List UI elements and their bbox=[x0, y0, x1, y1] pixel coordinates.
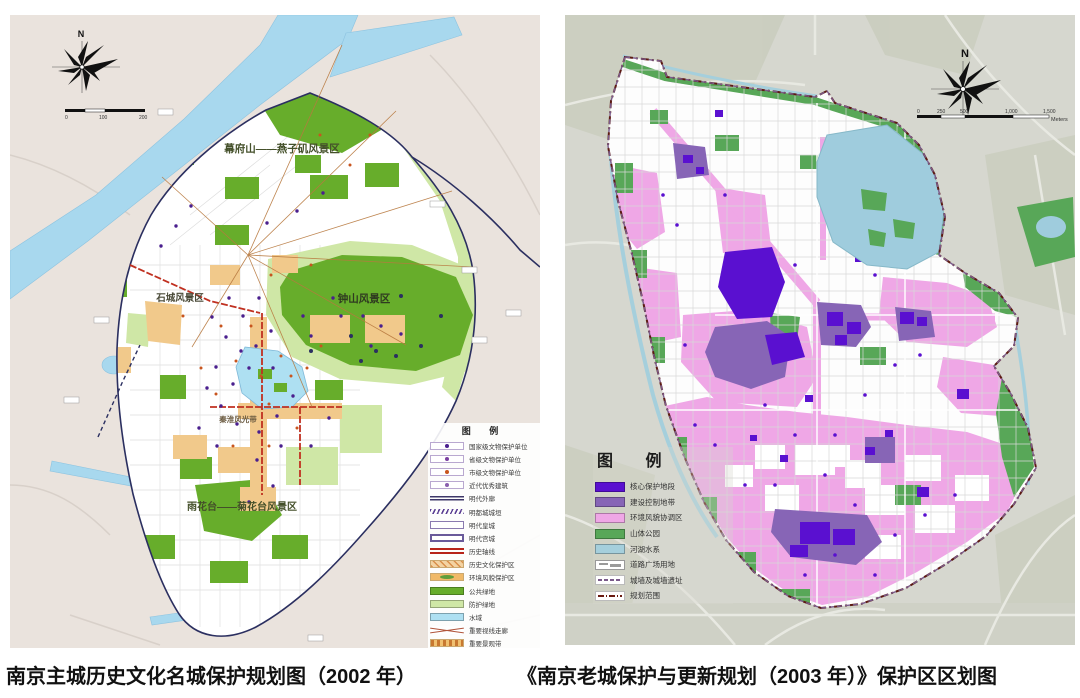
legend-label: 明代皇城 bbox=[469, 520, 495, 530]
label-yuhuatai: 雨花台——菊花台风景区 bbox=[187, 500, 297, 513]
legend-label: 明代宫城 bbox=[469, 533, 495, 543]
legend-item: 近代优秀建筑 bbox=[430, 479, 538, 492]
legend-swatch-fill bbox=[595, 529, 625, 539]
legend-item: 重要景观带 bbox=[430, 637, 538, 650]
left-legend-title: 图 例 bbox=[430, 424, 538, 437]
left-map-caption: 南京主城历史文化名城保护规划图（2002 年） bbox=[6, 660, 416, 689]
legend-item: 河湖水系 bbox=[595, 541, 731, 557]
background-strip bbox=[565, 603, 1075, 645]
legend-item: 核心保护地段 bbox=[595, 479, 731, 495]
right-legend: 图 例 核心保护地段建设控制地带环境风貌协调区山体公园河湖水系道路广场用地城墙及… bbox=[593, 447, 733, 604]
legend-label: 近代优秀建筑 bbox=[469, 480, 508, 490]
right-legend-title: 图 例 bbox=[597, 447, 731, 471]
legend-swatch-wall bbox=[595, 575, 625, 585]
legend-swatch-fill bbox=[595, 497, 625, 507]
legend-item: 省级文物保护单位 bbox=[430, 452, 538, 465]
figure-canvas: N 0 100 200 幕府山——燕子矶风景区 钟山风景区 石城风景区 雨花台—… bbox=[0, 0, 1080, 698]
compass-north-label: N bbox=[961, 48, 969, 60]
scale-tick: 100 bbox=[99, 115, 108, 121]
legend-item: 市级文物保护单位 bbox=[430, 465, 538, 478]
legend-item: 环境风貌保护区 bbox=[430, 571, 538, 584]
legend-swatch-fill bbox=[595, 482, 625, 492]
legend-label: 河湖水系 bbox=[630, 544, 660, 555]
legend-label: 明都城城垣 bbox=[469, 507, 502, 517]
legend-swatch-fill bbox=[595, 513, 625, 523]
left-legend-rows: 国家级文物保护单位省级文物保护单位市级文物保护单位近代优秀建筑明代外廓明都城城垣… bbox=[430, 439, 538, 650]
legend-swatch-dot bbox=[430, 442, 464, 450]
legend-swatch-outline bbox=[430, 521, 464, 529]
legend-item: 国家级文物保护单位 bbox=[430, 439, 538, 452]
legend-swatch-fill bbox=[595, 544, 625, 554]
legend-item: 环境风貌协调区 bbox=[595, 510, 731, 526]
legend-label: 防护绿地 bbox=[469, 599, 495, 609]
legend-label: 明代外廓 bbox=[469, 493, 495, 503]
legend-label: 重要视线走廊 bbox=[469, 625, 508, 635]
legend-item: 明代外廓 bbox=[430, 492, 538, 505]
scale-unit: Meters bbox=[1051, 117, 1068, 123]
legend-item: 历史轴线 bbox=[430, 545, 538, 558]
legend-swatch-fill bbox=[430, 600, 464, 608]
label-mufushan: 幕府山——燕子矶风景区 bbox=[223, 142, 340, 155]
legend-swatch-outline2 bbox=[430, 534, 464, 542]
legend-label: 重要景观带 bbox=[469, 638, 502, 648]
legend-swatch-cross bbox=[430, 626, 464, 634]
legend-label: 历史轴线 bbox=[469, 546, 495, 556]
left-map-panel: N 0 100 200 幕府山——燕子矶风景区 钟山风景区 石城风景区 雨花台—… bbox=[10, 15, 540, 648]
legend-label: 环境风貌保护区 bbox=[469, 572, 515, 582]
right-map-caption: 《南京老城保护与更新规划（2003 年）》保护区区划图 bbox=[517, 660, 997, 689]
right-map-panel: N 0 250 500 1,000 1,500 Meters 图 例 核心保护地… bbox=[565, 15, 1075, 645]
scale-tick: 250 bbox=[937, 109, 946, 115]
legend-swatch-wavy bbox=[430, 508, 464, 516]
right-legend-rows: 核心保护地段建设控制地带环境风貌协调区山体公园河湖水系道路广场用地城墙及城墙遗址… bbox=[595, 479, 731, 604]
legend-item: 防护绿地 bbox=[430, 597, 538, 610]
legend-label: 水域 bbox=[469, 612, 482, 622]
legend-label: 公共绿地 bbox=[469, 586, 495, 596]
legend-swatch-dot bbox=[430, 481, 464, 489]
legend-label: 环境风貌协调区 bbox=[630, 512, 683, 523]
legend-item: 水域 bbox=[430, 610, 538, 623]
legend-label: 历史文化保护区 bbox=[469, 559, 515, 569]
legend-swatch-fill bbox=[430, 613, 464, 621]
legend-swatch-road bbox=[595, 560, 625, 570]
legend-item: 明都城城垣 bbox=[430, 505, 538, 518]
label-zhongshan: 钟山风景区 bbox=[338, 292, 391, 305]
legend-swatch-dot bbox=[430, 468, 464, 476]
legend-label: 规划范围 bbox=[630, 590, 660, 601]
scale-tick: 0 bbox=[917, 109, 920, 115]
legend-swatch-blob bbox=[430, 573, 464, 581]
legend-label: 市级文物保护单位 bbox=[469, 467, 521, 477]
legend-swatch-dashband bbox=[430, 639, 464, 647]
legend-label: 建设控制地带 bbox=[630, 497, 675, 508]
legend-swatch-dot bbox=[430, 455, 464, 463]
legend-swatch-dblline bbox=[430, 547, 464, 555]
label-shicheng: 石城风景区 bbox=[155, 292, 204, 304]
legend-item: 规划范围 bbox=[595, 588, 731, 604]
legend-label: 道路广场用地 bbox=[630, 559, 675, 570]
legend-item: 公共绿地 bbox=[430, 584, 538, 597]
left-legend: 图 例 国家级文物保护单位省级文物保护单位市级文物保护单位近代优秀建筑明代外廓明… bbox=[428, 423, 540, 651]
legend-item: 重要视线走廊 bbox=[430, 624, 538, 637]
legend-item: 历史文化保护区 bbox=[430, 558, 538, 571]
legend-label: 省级文物保护单位 bbox=[469, 454, 521, 464]
legend-item: 山体公园 bbox=[595, 526, 731, 542]
label-qinhuai: 秦淮风光带 bbox=[218, 414, 257, 424]
compass-north-label: N bbox=[78, 29, 85, 39]
legend-item: 建设控制地带 bbox=[595, 495, 731, 511]
legend-item: 明代宫城 bbox=[430, 531, 538, 544]
legend-item: 道路广场用地 bbox=[595, 557, 731, 573]
legend-label: 城墙及城墙遗址 bbox=[630, 575, 683, 586]
legend-item: 城墙及城墙遗址 bbox=[595, 573, 731, 589]
legend-label: 国家级文物保护单位 bbox=[469, 441, 528, 451]
legend-label: 山体公园 bbox=[630, 528, 660, 539]
legend-swatch-boundary bbox=[595, 591, 625, 601]
scale-tick: 1,500 bbox=[1043, 109, 1056, 115]
scale-tick: 0 bbox=[65, 115, 68, 121]
scale-tick: 200 bbox=[139, 115, 148, 121]
scale-tick: 500 bbox=[960, 109, 969, 115]
legend-swatch-fill bbox=[430, 587, 464, 595]
legend-swatch-line bbox=[430, 494, 464, 502]
scale-tick: 1,000 bbox=[1005, 109, 1018, 115]
legend-item: 明代皇城 bbox=[430, 518, 538, 531]
legend-label: 核心保护地段 bbox=[630, 481, 675, 492]
legend-swatch-hatch bbox=[430, 560, 464, 568]
